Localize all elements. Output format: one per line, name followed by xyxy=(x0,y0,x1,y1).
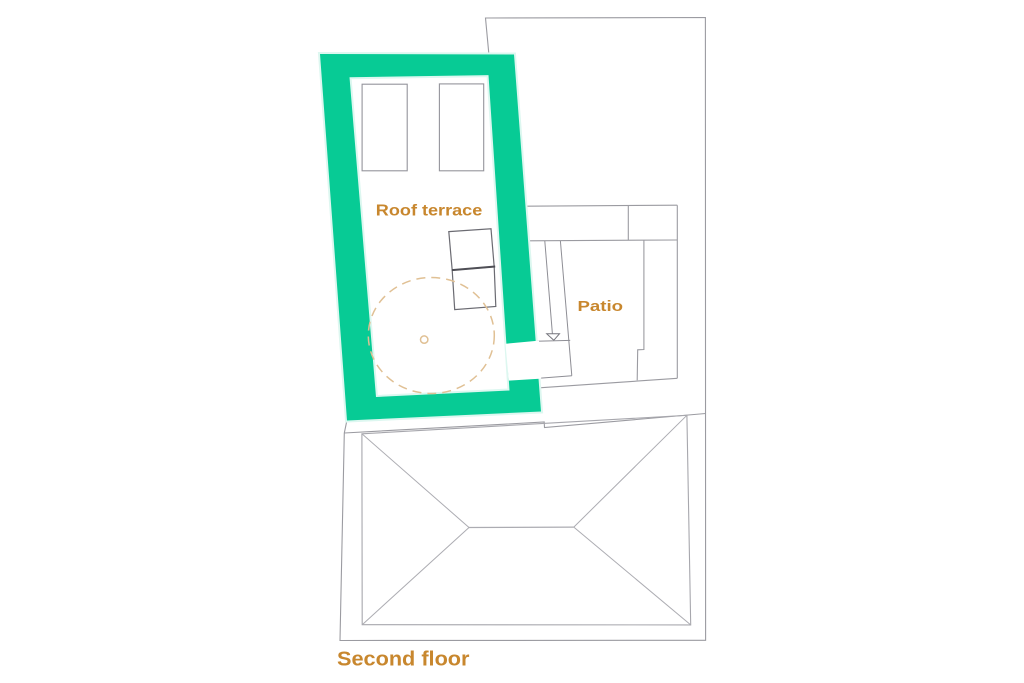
svg-text:Roof terrace: Roof terrace xyxy=(376,203,483,220)
svg-text:Patio: Patio xyxy=(578,298,624,315)
svg-text:Second floor: Second floor xyxy=(337,648,470,670)
